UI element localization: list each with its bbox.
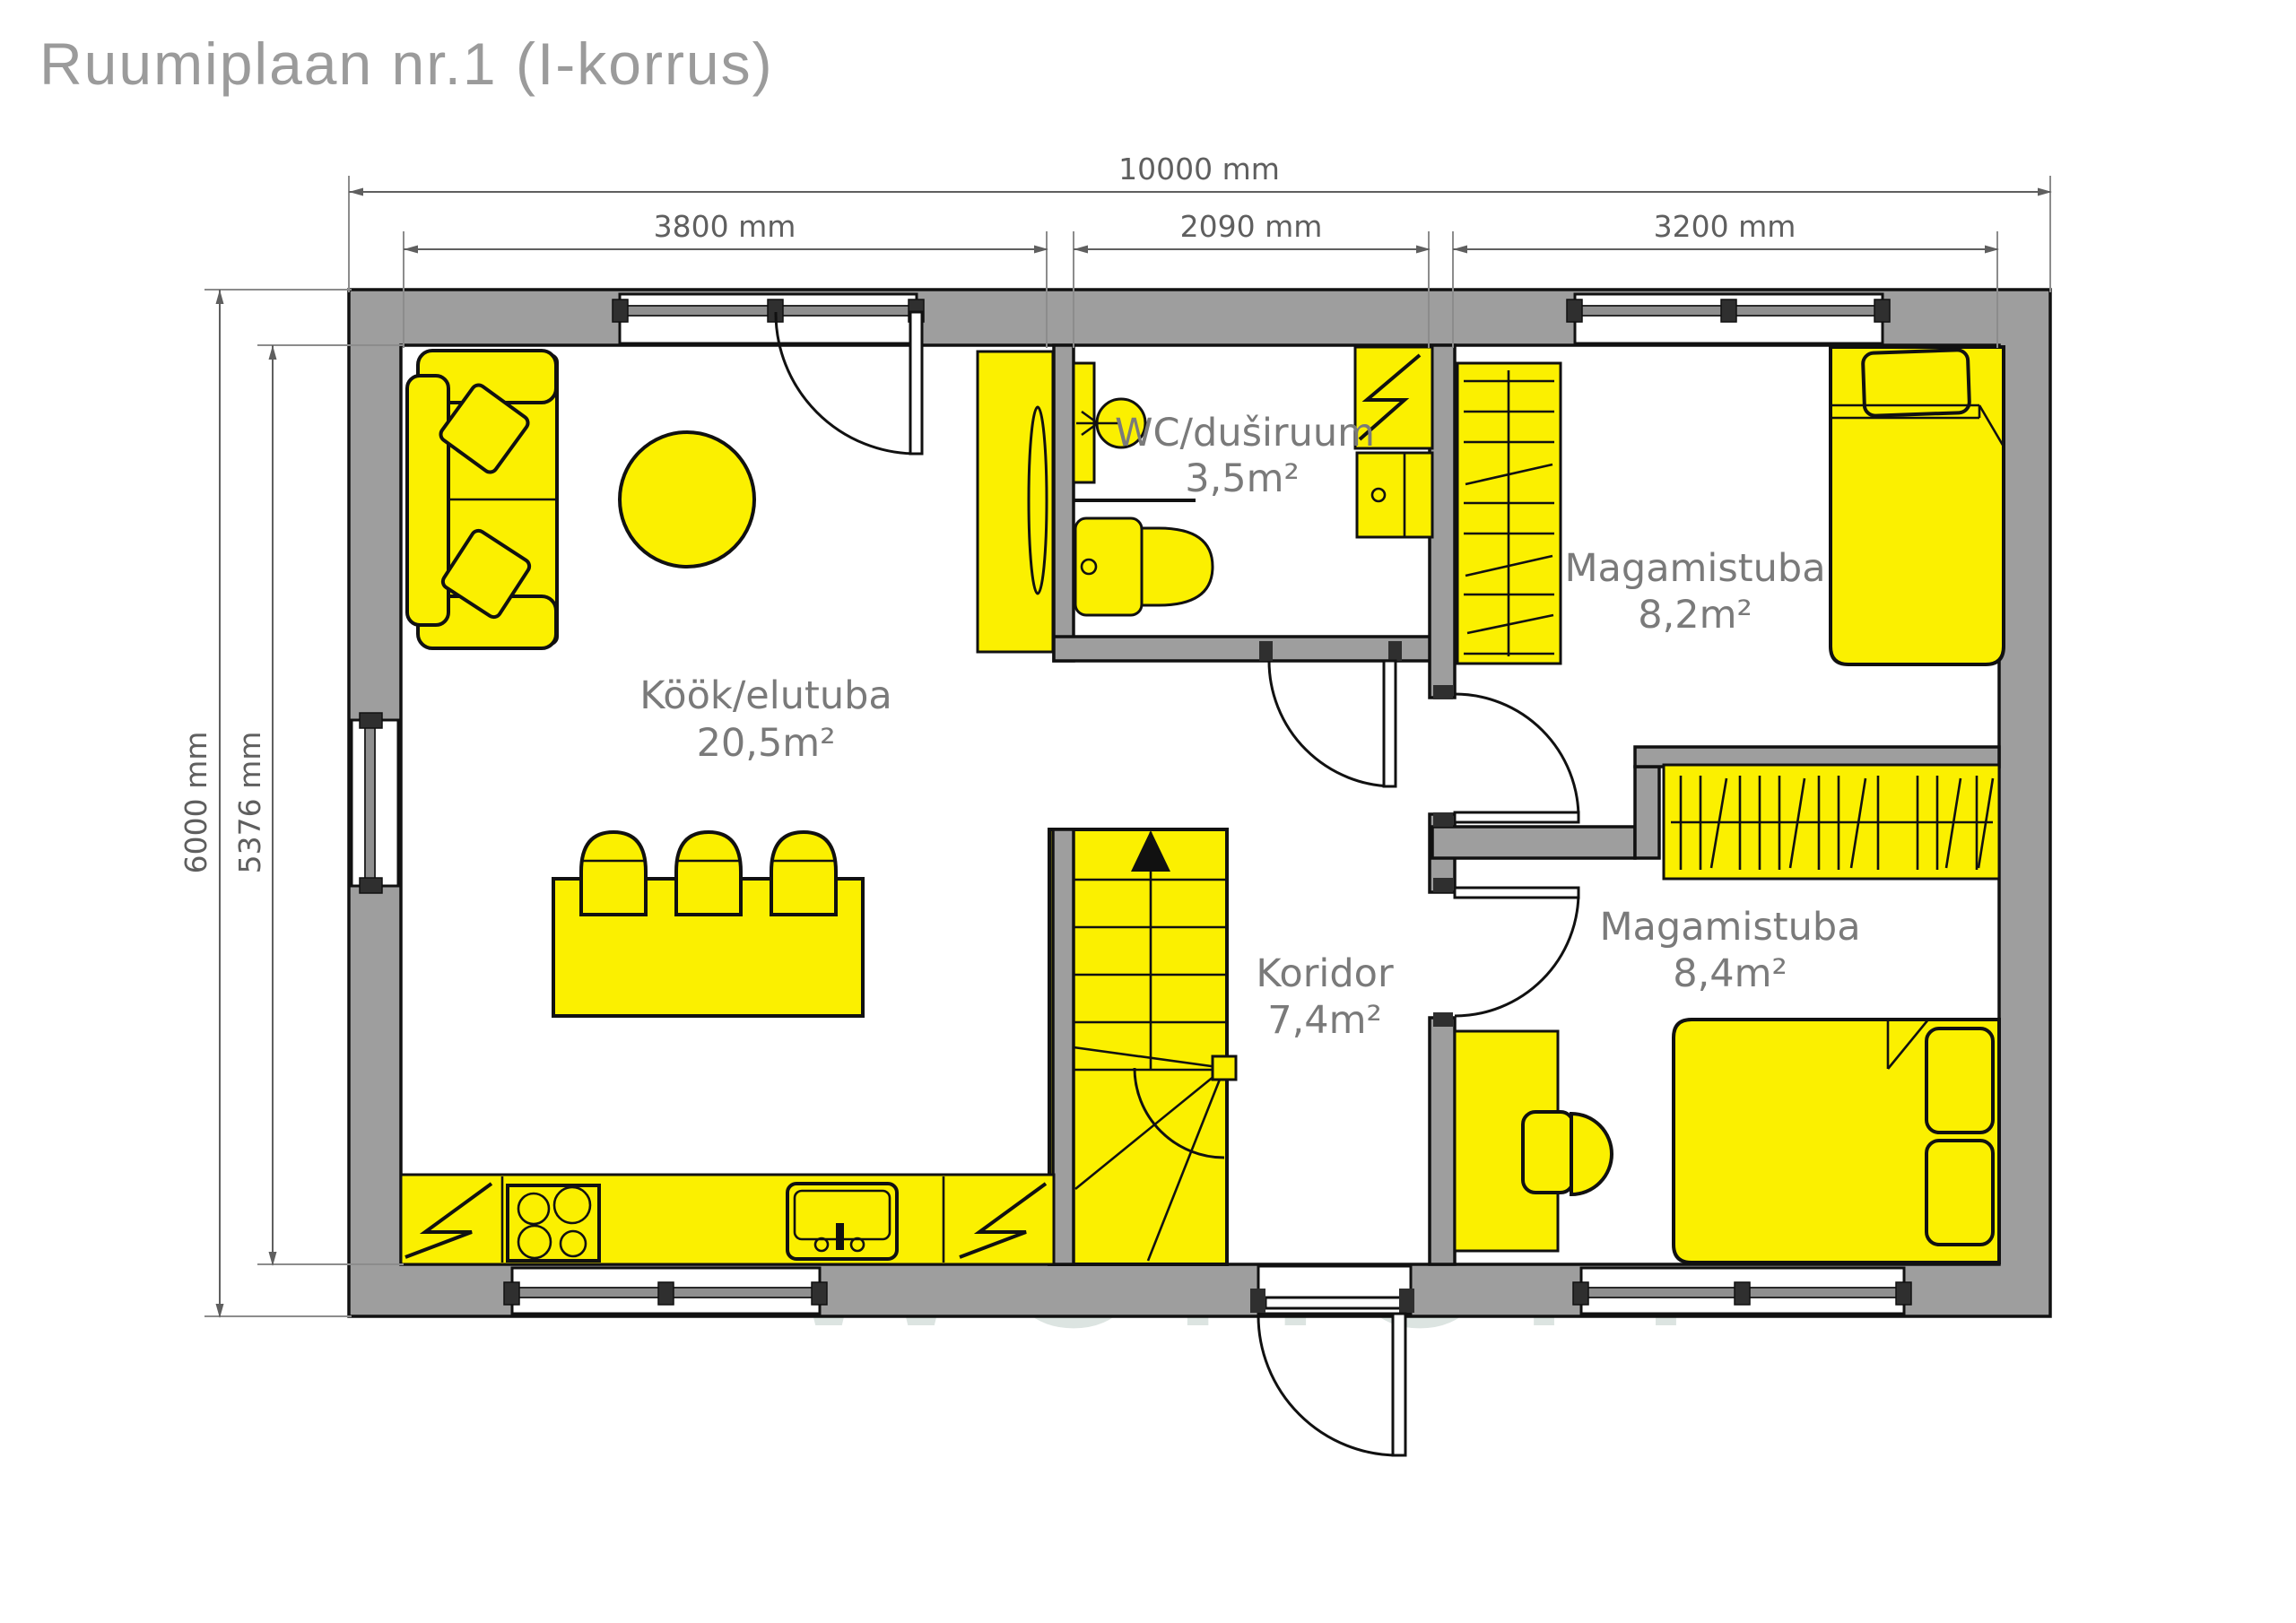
label-bedroom2-name: Magamistuba: [1599, 905, 1860, 950]
floor-plan: WOHOM: [0, 0, 2296, 1623]
dining-chair: [581, 832, 646, 915]
label-bathroom-area: 3,5m²: [1185, 456, 1300, 501]
stairs: [1049, 829, 1236, 1264]
sofa: [407, 351, 557, 648]
label-corridor-name: Koridor: [1256, 951, 1394, 996]
dim-label-living-width: 3800 mm: [654, 209, 796, 244]
tv-stand: [978, 352, 1053, 652]
window-bedroom1: [1567, 294, 1890, 343]
coffee-table: [620, 432, 754, 567]
dim-label-wc-width: 2090 mm: [1180, 209, 1323, 244]
wardrobe-1: [1457, 363, 1561, 664]
label-bathroom-name: WC/duširuum: [1115, 411, 1375, 456]
kitchen-sink: [787, 1184, 897, 1259]
door-leaf: [1455, 888, 1578, 898]
wardrobe-2: [1664, 765, 1999, 879]
label-living-area: 20,5m²: [697, 721, 836, 766]
window-bedroom2: [1573, 1268, 1911, 1314]
page-title: Ruumiplaan nr.1 (I-korrus): [39, 30, 774, 97]
wall-bedroom-divider-left: [1432, 827, 1635, 858]
wall-living-wc: [1054, 345, 1074, 661]
label-bedroom2-area: 8,4m²: [1673, 951, 1787, 996]
dining-chair: [771, 832, 836, 915]
dim-label-interior-height: 5376 mm: [232, 732, 267, 874]
window-kitchen: [504, 1268, 827, 1314]
bed-single: [1831, 347, 2004, 664]
pillow: [1926, 1028, 1993, 1133]
wall-corridor-bottom: [1430, 1018, 1455, 1264]
dining-chair: [676, 832, 741, 915]
dim-label-total-width: 10000 mm: [1118, 152, 1280, 187]
window-left: [352, 713, 398, 893]
dim-label-bedroom-width: 3200 mm: [1654, 209, 1796, 244]
window-living-top: [613, 294, 924, 343]
tv-icon: [1029, 407, 1047, 594]
bathroom-cabinet: [1357, 453, 1432, 537]
label-corridor-area: 7,4m²: [1267, 998, 1382, 1043]
stairs-newel: [1213, 1056, 1236, 1080]
door-leaf: [1393, 1314, 1405, 1455]
door-leaf: [1384, 661, 1396, 786]
label-bedroom1-area: 8,2m²: [1638, 593, 1752, 638]
kitchen-counter: [401, 1175, 1054, 1264]
stove: [508, 1185, 599, 1261]
dim-label-total-height: 6000 mm: [178, 732, 213, 874]
label-bedroom1-name: Magamistuba: [1564, 546, 1825, 591]
dining-table-set: [553, 832, 863, 1016]
wall-wc-bottom: [1054, 637, 1432, 661]
toilet: [1075, 518, 1213, 615]
door-leaf: [1455, 812, 1578, 822]
desk-chair: [1523, 1112, 1612, 1194]
bed-double: [1674, 1020, 1999, 1263]
pillow: [1926, 1141, 1993, 1245]
door-leaf: [910, 312, 922, 454]
wall-bedroom-divider-stub: [1635, 767, 1659, 858]
label-living-name: Köök/elutuba: [639, 673, 891, 718]
